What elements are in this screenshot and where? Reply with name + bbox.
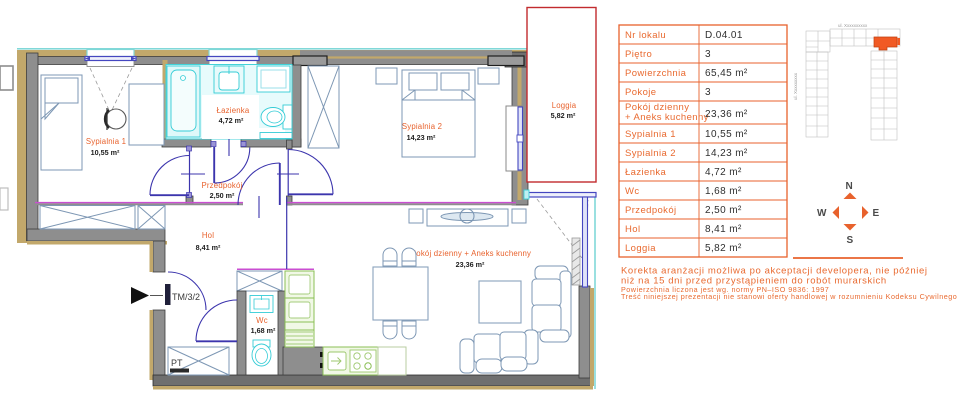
svg-text:2,50 m²: 2,50 m² [210,191,235,200]
svg-text:3: 3 [705,87,711,98]
svg-text:N: N [846,181,853,192]
svg-text:Hol: Hol [625,224,640,235]
svg-text:Łazienka: Łazienka [217,106,250,115]
svg-text:Sypialnia 1: Sypialnia 1 [625,129,676,140]
svg-text:Piętro: Piętro [625,49,652,60]
svg-text:10,55 m²: 10,55 m² [91,148,120,157]
svg-text:Hol: Hol [202,231,214,240]
svg-text:5,82 m²: 5,82 m² [551,111,576,120]
svg-text:Przedpokój: Przedpokój [625,205,677,216]
svg-text:4,72 m²: 4,72 m² [219,116,244,125]
svg-text:Loggia: Loggia [625,243,656,254]
svg-text:8,41 m²: 8,41 m² [705,224,742,235]
svg-text:8,41 m²: 8,41 m² [196,243,221,252]
svg-text:Wc: Wc [256,316,268,325]
svg-text:1,68 m²: 1,68 m² [251,326,276,335]
svg-text:Pokój dzienny + Aneks kuchenny: Pokój dzienny + Aneks kuchenny [411,249,531,258]
svg-text:Sypialnia 2: Sypialnia 2 [625,148,676,159]
svg-text:Sypialnia 2: Sypialnia 2 [402,122,442,131]
svg-text:Przedpokój: Przedpokój [201,181,242,190]
svg-text:W: W [817,208,827,219]
svg-text:D.04.01: D.04.01 [705,30,743,41]
svg-text:23,36 m²: 23,36 m² [456,260,485,269]
svg-text:E: E [873,208,880,219]
svg-text:S: S [847,235,854,246]
svg-text:5,82 m²: 5,82 m² [705,243,742,254]
svg-text:+ Aneks kuchenny: + Aneks kuchenny [625,112,709,123]
svg-text:Loggia: Loggia [552,101,577,110]
svg-text:ul. Xxxxxxxxxx: ul. Xxxxxxxxxx [838,23,868,28]
svg-text:Sypialnia 1: Sypialnia 1 [86,137,126,146]
svg-text:14,23 m²: 14,23 m² [705,148,748,159]
svg-text:Wc: Wc [625,186,640,197]
svg-text:23,36 m²: 23,36 m² [705,109,748,120]
svg-text:Nr lokalu: Nr lokalu [625,30,666,41]
svg-text:Pokoje: Pokoje [625,87,656,98]
svg-text:PT: PT [171,358,183,368]
svg-text:ul. Xxxxxxxxx: ul. Xxxxxxxxx [793,72,798,100]
svg-text:3: 3 [705,49,711,60]
svg-text:65,45 m²: 65,45 m² [705,68,748,79]
svg-text:2,50 m²: 2,50 m² [705,205,742,216]
svg-text:4,72 m²: 4,72 m² [705,167,742,178]
svg-text:Treść niniejszej prezentacji n: Treść niniejszej prezentacji nie stanowi… [621,292,957,301]
svg-text:TM/3/2: TM/3/2 [172,292,200,302]
svg-text:14,23 m²: 14,23 m² [407,133,436,142]
svg-text:Powierzchnia: Powierzchnia [625,68,687,79]
svg-text:Łazienka: Łazienka [625,167,667,178]
svg-text:10,55 m²: 10,55 m² [705,129,748,140]
svg-text:1,68 m²: 1,68 m² [705,186,742,197]
